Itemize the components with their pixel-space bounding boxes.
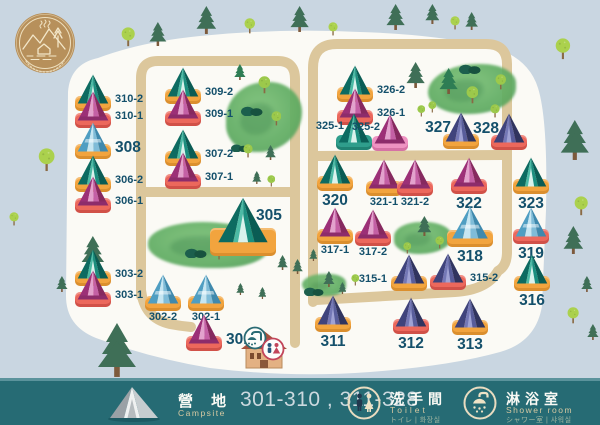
site-label-321-1: 321-1 [370, 197, 398, 208]
tree-round-icon [403, 241, 412, 253]
tree-round-icon [567, 307, 579, 324]
site-label-307-1: 307-1 [205, 172, 233, 183]
tree-pine-icon [292, 259, 303, 274]
tree-round-icon [258, 76, 271, 94]
tent-pink-icon [355, 209, 391, 239]
site-label-315-1: 315-1 [359, 274, 387, 285]
tree-round-icon [328, 22, 338, 36]
tree-pine-icon [234, 64, 246, 80]
tree-round-icon [450, 16, 460, 30]
site-label-325-1: 325-1 [316, 121, 344, 132]
shower-label-en: Shower room [506, 405, 573, 415]
site-label-312: 312 [398, 336, 424, 352]
tree-pine-icon [258, 286, 267, 298]
tree-pine-icon [581, 276, 593, 292]
tree-round-icon [495, 74, 507, 90]
tree-pine-icon [563, 226, 584, 254]
tent-purple-icon [391, 254, 427, 284]
tree-pine-icon [196, 6, 217, 34]
tree-round-icon [121, 27, 135, 47]
tree-bush-icon [241, 103, 263, 114]
tree-pine-icon [290, 6, 309, 32]
tree-pine-icon [252, 171, 262, 184]
tree-bush-icon [459, 61, 481, 72]
site-label-326-2: 326-2 [377, 85, 405, 96]
tent-blue-icon [449, 206, 491, 239]
site-label-317-2: 317-2 [359, 247, 387, 258]
tent-purple-icon [430, 253, 466, 283]
site-label-313: 313 [457, 337, 483, 353]
tree-pine-icon [236, 282, 245, 294]
site-label-321-2: 321-2 [401, 197, 429, 208]
tent-pink-icon [75, 270, 111, 300]
tent-pink-icon [451, 157, 487, 187]
tree-round-icon [428, 100, 437, 112]
site-label-310-1: 310-1 [115, 111, 143, 122]
toilet-label-en: Toilet [390, 405, 428, 415]
toilet-label-sub: トイレ | 화장실 [390, 415, 441, 425]
tent-pink-icon [165, 89, 201, 119]
tent-purple-icon [452, 298, 488, 328]
tent-pink-icon [75, 176, 111, 206]
tent-blue-icon [75, 122, 111, 152]
tent-blue-icon [145, 274, 181, 304]
tree-pine-icon [587, 324, 599, 340]
tree-pine-icon [406, 62, 425, 88]
campsite-label-en: Campsite [178, 408, 226, 418]
tree-round-icon [271, 111, 282, 126]
campsite-map: 310-2310-1308306-2306-1303-2303-1309-230… [0, 0, 600, 425]
tree-pine-icon [425, 4, 440, 24]
tent-pink-icon [165, 152, 201, 182]
campground-logo [14, 12, 76, 74]
tent-pink-icon [317, 207, 353, 237]
site-label-308: 308 [115, 140, 141, 156]
site-label-306-1: 306-1 [115, 196, 143, 207]
site-label-303-1: 303-1 [115, 290, 143, 301]
shower-label-sub: シャワー室 | 샤워실 [506, 415, 572, 425]
tree-pine-icon [417, 216, 432, 236]
site-label-309-2: 309-2 [205, 87, 233, 98]
tree-round-icon [243, 144, 253, 158]
tent-blue-icon [188, 274, 224, 304]
site-label-310-2: 310-2 [115, 94, 143, 105]
site-label-311: 311 [320, 334, 345, 350]
toilet-badge-icon [263, 339, 284, 360]
site-label-316: 316 [519, 293, 545, 309]
tree-bush-icon [304, 283, 324, 293]
site-label-317-1: 317-1 [321, 245, 349, 256]
tree-pine-icon [149, 22, 167, 46]
tent-pink-icon [186, 314, 222, 344]
tree-round-icon [267, 174, 276, 186]
tree-pine-icon [560, 120, 590, 160]
tree-pine-icon [338, 281, 347, 293]
tree-round-icon [466, 86, 479, 104]
tree-pine-icon [309, 248, 318, 260]
tent-teal-icon [514, 254, 550, 284]
tree-round-icon [574, 196, 588, 216]
tent-pink-icon [397, 159, 433, 189]
tree-pine-icon [439, 68, 458, 94]
site-label-328: 328 [473, 121, 499, 137]
tent-purple-icon [315, 295, 351, 325]
tree-round-icon [38, 148, 55, 172]
site-label-325-2: 325-2 [352, 122, 380, 133]
site-label-303-2: 303-2 [115, 269, 143, 280]
site-label-305: 305 [256, 208, 282, 224]
tree-round-icon [417, 104, 426, 116]
tent-pink-icon [75, 91, 111, 121]
tent-blue-icon [513, 207, 549, 237]
site-label-307-2: 307-2 [205, 149, 233, 160]
tree-bush-icon [185, 245, 207, 256]
facilities-house [236, 322, 292, 374]
tree-pine-icon [323, 271, 335, 287]
site-label-309-1: 309-1 [205, 109, 233, 120]
tree-round-icon [244, 18, 256, 34]
tree-pine-icon [97, 323, 137, 377]
shower-icon [462, 385, 498, 421]
site-label-315-2: 315-2 [470, 273, 498, 284]
toilet-icon [346, 385, 382, 421]
tree-round-icon [435, 236, 444, 249]
tree-pine-icon [386, 4, 405, 30]
site-label-306-2: 306-2 [115, 175, 143, 186]
site-label-302-2: 302-2 [149, 312, 177, 323]
tree-round-icon [555, 38, 571, 60]
site-label-327: 327 [425, 120, 451, 136]
tree-pine-icon [277, 255, 288, 270]
tree-round-icon [9, 212, 19, 226]
legend-bar: 營 地 Campsite 301-310 , 311-328 洗手間 Toile… [0, 378, 600, 425]
campsite-tent-icon [102, 385, 166, 423]
tree-pine-icon [265, 145, 276, 160]
tree-pine-icon [465, 12, 478, 30]
site-label-320: 320 [322, 193, 348, 209]
tent-teal-icon [317, 154, 353, 184]
tree-pine-icon [56, 276, 68, 292]
tent-teal-icon [513, 157, 549, 187]
tent-purple-icon [393, 297, 429, 327]
